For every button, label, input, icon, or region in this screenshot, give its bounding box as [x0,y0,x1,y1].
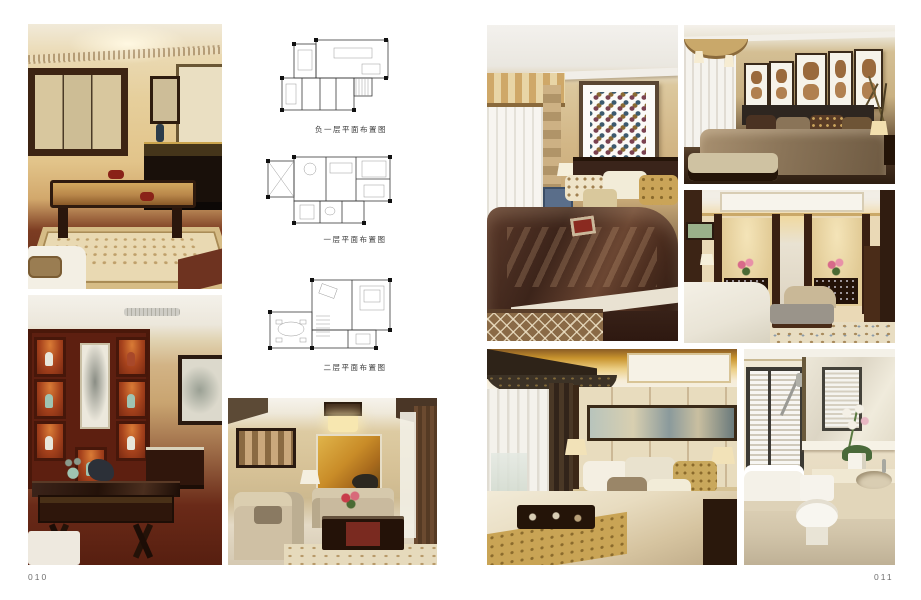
table-lamp [711,447,735,464]
floor-plan-caption: 负一层平面布置图 [296,124,406,135]
bedspread-sheen [507,227,657,287]
bathtub [744,465,804,511]
toilet-tank [800,475,834,501]
hanging-scroll-painting [80,343,110,429]
wall-sconce [694,51,704,63]
book-spread: 负一层平面布置图 一层平面布置图 [0,0,921,600]
faucet [882,459,886,473]
horizontal-wall-art [236,428,296,468]
table-runner [346,522,380,546]
white-vase [45,352,53,366]
framed-artwork [769,61,794,107]
second-floor-plan [264,274,398,356]
floor-plan-caption: 二层平面布置图 [300,362,410,373]
flower-arrangement [338,490,364,510]
table-lamp [870,121,888,135]
patterned-pillow [28,256,62,278]
wood-beam [880,190,895,343]
console-table [884,135,895,165]
framed-window-mirror [28,68,128,156]
writing-desk-drawers [38,495,174,523]
white-stool [28,531,80,565]
red-gift-card [570,215,596,236]
framed-artwork [744,63,769,107]
photo-bedroom-3 [684,190,895,343]
dark-wainscot [864,246,880,322]
diamond-rug [487,309,603,341]
celadon-vase [45,394,53,408]
right-page-number: 011 [874,572,894,582]
flower-arrangement [62,455,84,481]
photo-bedroom-2 [684,25,895,184]
toilet-seat [796,499,838,529]
foot-bench [688,153,778,181]
pillow [639,175,678,205]
white-bed [684,282,770,343]
red-jar [127,352,135,366]
photo-study [28,295,222,565]
ceiling-tray [720,192,864,212]
white-vase [45,436,53,450]
wall-sconce [724,55,734,67]
photo-bathroom [744,349,895,565]
framed-landscape-art [178,355,222,425]
window-mullion [768,367,771,471]
framed-artwork [795,53,827,109]
wood-pilaster [772,214,780,314]
long-scroll-artwork [587,405,737,441]
toilet-base [806,527,828,545]
left-page-number: 010 [28,572,48,582]
dot-pattern [590,92,646,160]
photo-living-room-2 [228,398,437,565]
small-wall-art [686,222,714,240]
red-box [108,170,124,179]
basement-floor-plan [276,34,396,122]
orchid-flowers [836,401,872,441]
sink-basin [856,471,892,489]
table-lamp [300,470,320,484]
sofa-pillow [254,506,282,524]
ceiling-shadow [228,398,268,424]
display-niche [34,379,66,419]
table-lamp [565,439,587,455]
ceiling-lantern-frame [324,402,362,416]
pink-flower-vase [824,256,846,278]
wall-mirror-panel [176,64,222,146]
display-niche [116,337,148,377]
coffee-table-legs [58,204,182,238]
table-lamp [700,254,714,265]
coffee-table [322,516,404,550]
gold-landscape-painting [316,434,382,496]
framed-artwork [828,51,853,107]
pink-flower-vase [734,256,756,278]
photo-bedroom-4 [487,349,737,565]
red-box [140,192,154,201]
photo-living-room-1 [28,24,222,289]
small-wall-frames [150,76,180,124]
brown-curtain [414,406,437,546]
vase [156,124,164,142]
display-niche [34,337,66,377]
first-floor-plan [264,153,396,229]
display-niche [116,421,148,461]
tea-tray [517,505,595,529]
dark-cabinet [703,499,737,565]
ac-vent [124,308,180,316]
wood-post [573,385,579,489]
gray-foot-bench [770,304,834,324]
white-vase [127,436,135,450]
ceiling-lantern-shade [328,416,358,432]
display-niche [116,379,148,419]
photo-bedroom-1 [487,25,678,341]
ceiling-recess [627,353,731,383]
floor-plan-caption: 一层平面布置图 [300,234,410,245]
celadon-vase [127,394,135,408]
carved-coffee-table [50,180,196,208]
